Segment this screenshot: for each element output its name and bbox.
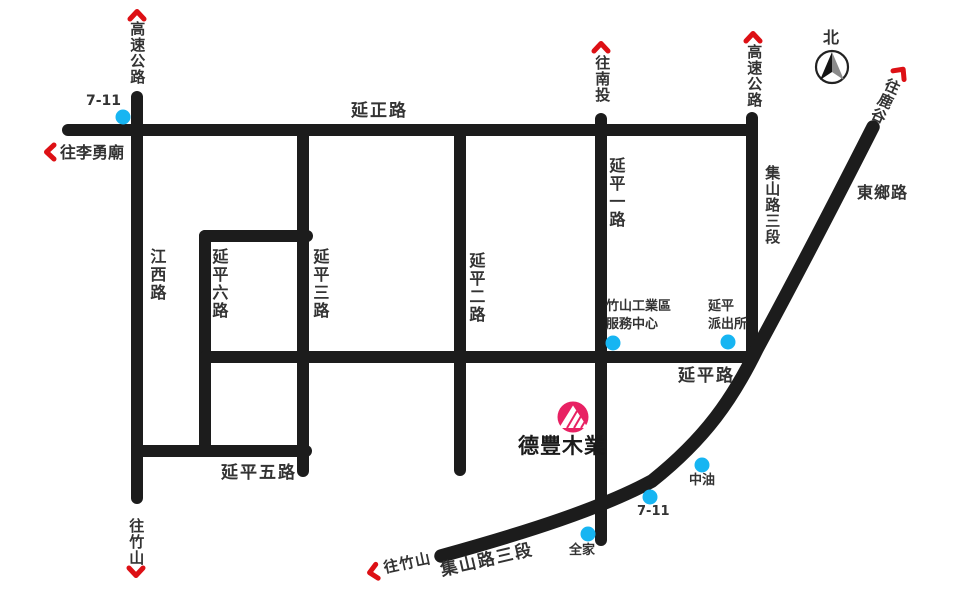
- compass-icon: [816, 51, 848, 83]
- road-label-yanping-3rd: 延平三路: [310, 248, 328, 320]
- road-label-yanping-2nd: 延平二路: [466, 252, 484, 324]
- up-arrow-icon-highway-right: [746, 34, 760, 42]
- direction-label-liyong-temple: 往李勇廟: [60, 144, 124, 162]
- up-arrow-icon-nantou: [594, 44, 608, 52]
- left-arrow-icon-zhushan-bottom: [368, 564, 378, 579]
- road-label-jishan-3rd-right: 集山路三段: [763, 165, 780, 245]
- road-label-yanping-1st: 延平一路: [606, 157, 624, 229]
- road-label-yanzheng: 延正路: [351, 102, 408, 122]
- poi-dot-family-mart: [581, 527, 596, 542]
- brand-name: 德豐木業: [518, 434, 606, 458]
- poi-label-family-mart: 全家: [569, 544, 595, 559]
- road-label-yanping: 延平路: [678, 367, 735, 387]
- poi-label-7-11-top: 7-11: [86, 93, 121, 109]
- poi-label-police-line2: 派出所: [708, 318, 747, 333]
- poi-label-police-line1: 延平: [708, 300, 734, 315]
- road-label-jiangxi: 江西路: [147, 248, 165, 302]
- road-label-highway-right: 高速公路: [745, 44, 762, 108]
- poi-dot-service-center: [606, 336, 621, 351]
- up-right-arrow-icon-lugu: [893, 65, 909, 80]
- poi-dot-police-station: [721, 335, 736, 350]
- poi-label-service-center-line2: 服務中心: [606, 318, 658, 333]
- road-label-highway-left: 高速公路: [128, 21, 145, 85]
- up-arrow-icon-highway-left: [130, 12, 144, 20]
- road-label-yanping-6th: 延平六路: [209, 248, 227, 320]
- down-arrow-icon-zhushan: [129, 568, 143, 576]
- poi-label-service-center-line1: 竹山工業區: [606, 300, 671, 315]
- poi-dot-7-11-top: [116, 110, 131, 125]
- poi-dot-7-11-bottom: [643, 490, 658, 505]
- road-jishan-3rd-curve: [441, 127, 873, 556]
- brand-logo-icon: [558, 402, 589, 433]
- route-map: 高速公路 7-11 延正路 往李勇廟 往南投 高速公路 北 往鹿谷 東鄉路 集山…: [0, 0, 960, 600]
- direction-label-nantou: 往南投: [593, 55, 610, 103]
- road-label-dongxiang: 東鄉路: [857, 184, 908, 202]
- left-arrow-icon-liyong: [47, 145, 55, 159]
- direction-label-zhushan-left: 往竹山: [127, 518, 144, 566]
- road-label-yanping-5th: 延平五路: [221, 464, 297, 484]
- poi-label-7-11-bottom: 7-11: [637, 505, 670, 520]
- poi-dot-cpc: [695, 458, 710, 473]
- poi-label-cpc: 中油: [689, 474, 715, 489]
- north-label: 北: [823, 29, 839, 47]
